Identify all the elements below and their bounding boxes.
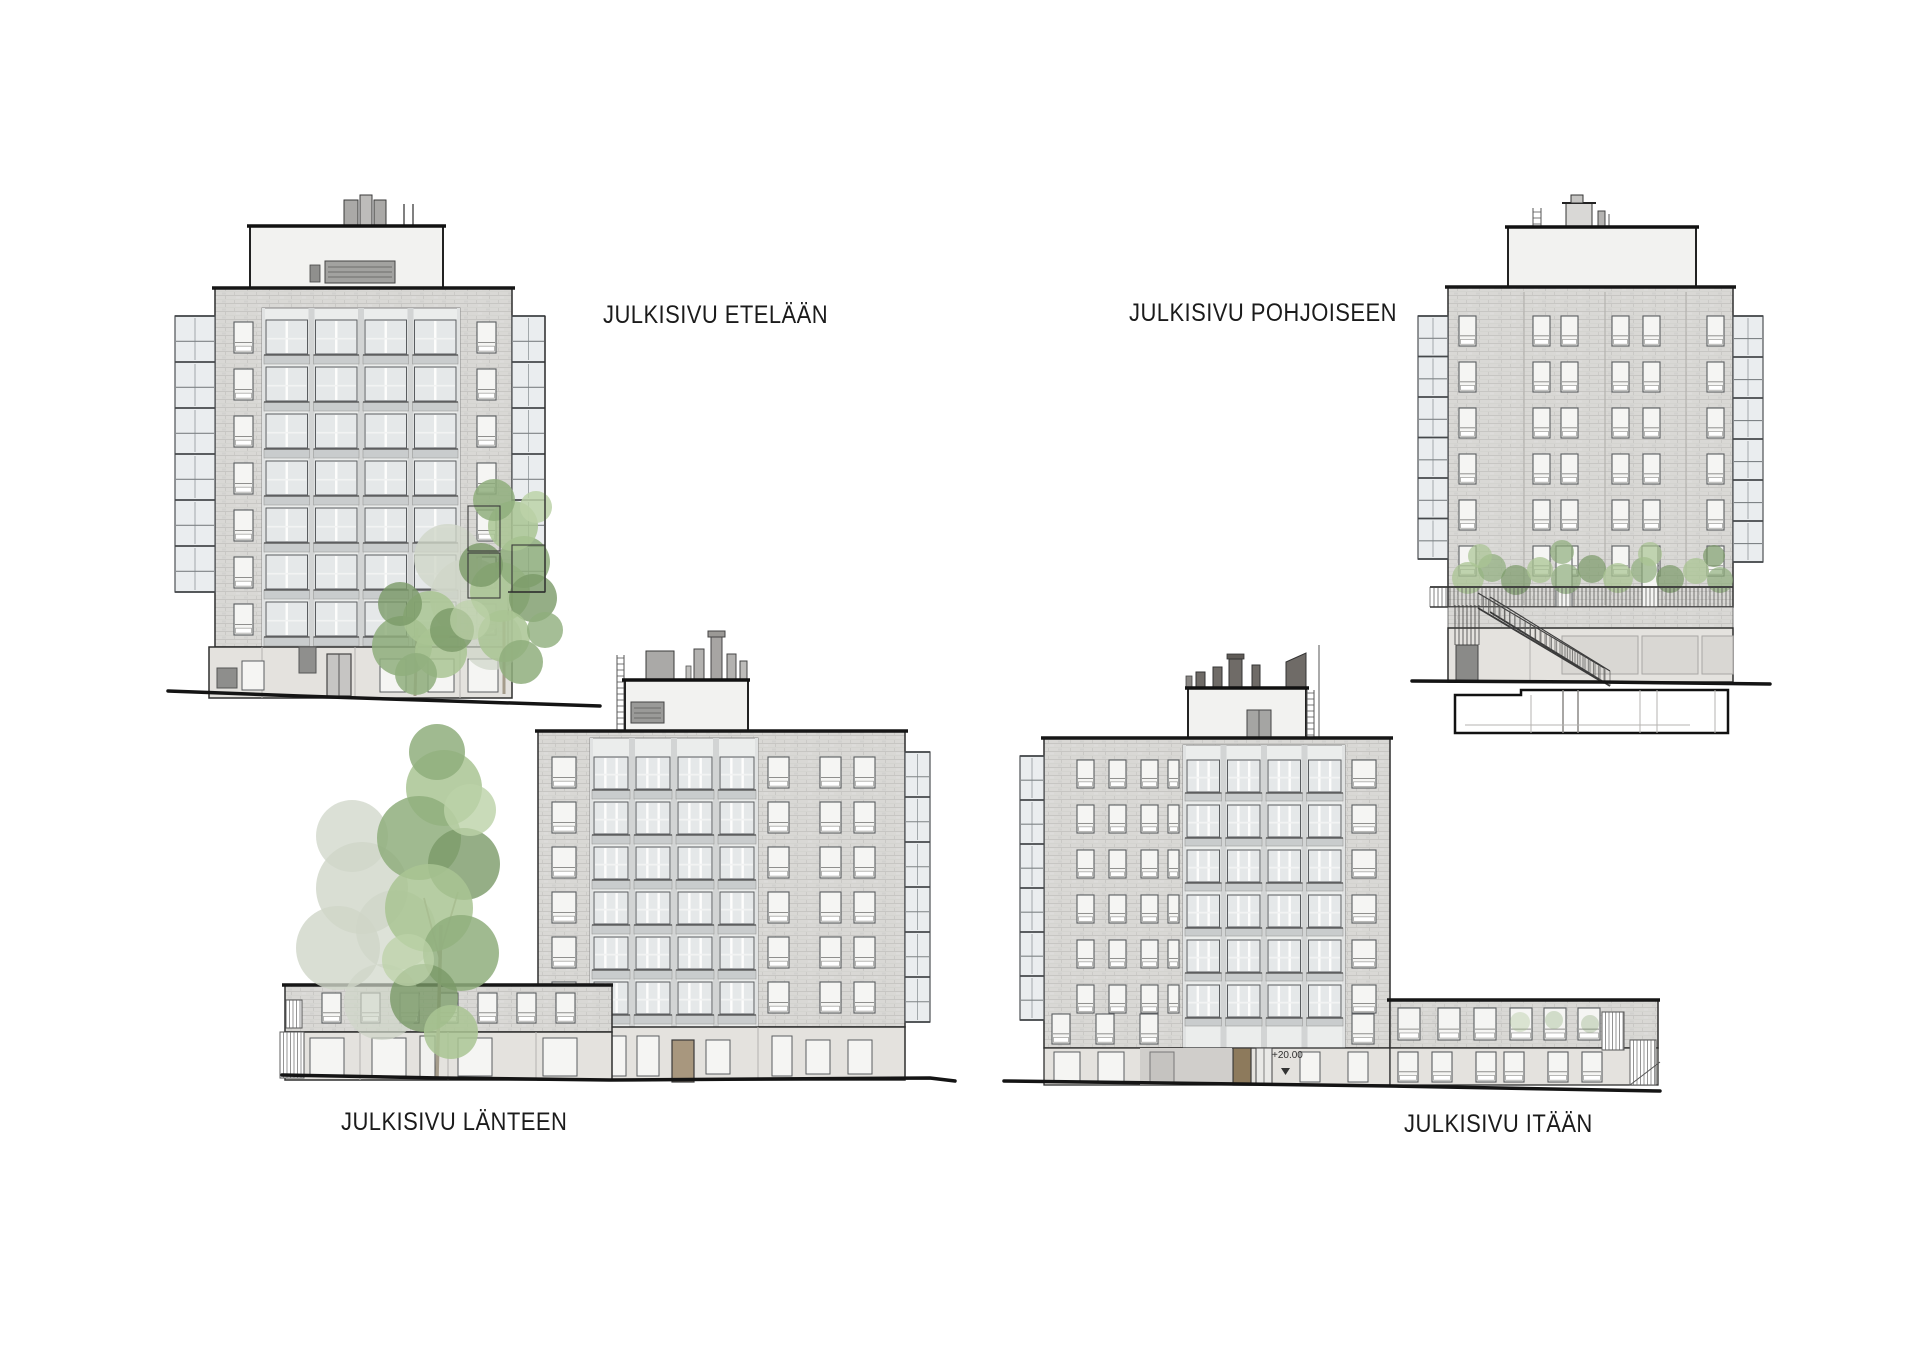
facade-south-drawing: [168, 195, 600, 706]
elevation-label-east: JULKISIVU ITÄÄN: [1404, 1110, 1593, 1139]
elevation-sheet: JULKISIVU ETELÄÄN JULKISIVU POHJOISEEN J…: [0, 0, 1920, 1357]
elevation-label-west: JULKISIVU LÄNTEEN: [341, 1108, 567, 1137]
facade-north-drawing: [1412, 195, 1770, 733]
elevation-label-north: JULKISIVU POHJOISEEN: [1129, 299, 1397, 328]
elevations-canvas: [0, 0, 1920, 1357]
entry-level-annotation: +20.00: [1272, 1050, 1303, 1061]
elevation-label-south: JULKISIVU ETELÄÄN: [603, 301, 828, 330]
